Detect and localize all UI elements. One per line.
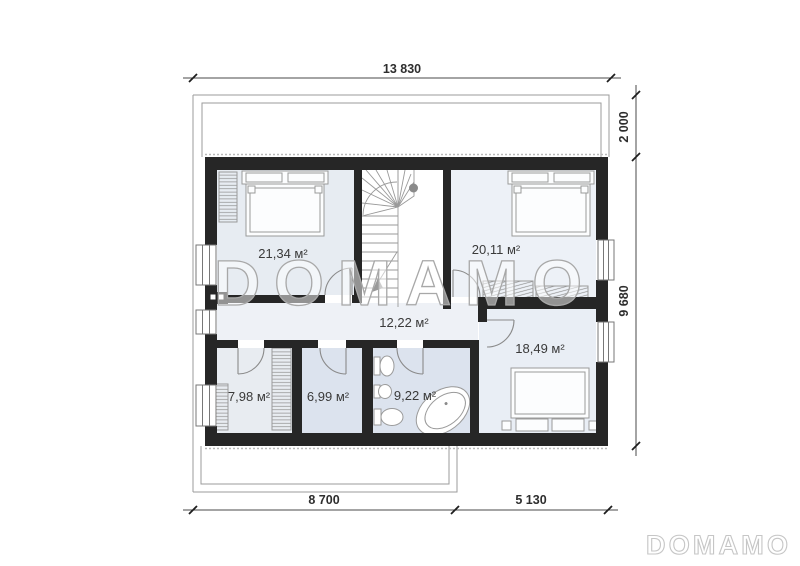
sink <box>374 356 394 376</box>
dim-bottom-left: 8 700 <box>308 493 339 507</box>
floor-plan-drawing: 21,34 м² 20,11 м² 12,22 м² 18,49 м² 7,98… <box>0 0 800 566</box>
shelving-wardrobe-room-right <box>272 346 291 430</box>
window-west-wardrobe-room <box>196 385 216 426</box>
wall-wardrobe-utility <box>292 340 302 433</box>
dim-bottom-right: 5 130 <box>515 493 546 507</box>
bed-top-left <box>242 171 328 236</box>
wall-bathroom-bedroom3 <box>470 340 479 433</box>
room-label-wardrobe-room: 7,98 м² <box>228 389 271 404</box>
window-west-hallway <box>196 310 216 334</box>
wardrobe-bedroom-top-left <box>219 172 237 222</box>
stair-newel-post <box>409 184 418 193</box>
room-label-bathroom: 9,22 м² <box>394 388 437 403</box>
wall-exterior-north <box>205 157 608 170</box>
wall-exterior-east <box>596 157 608 446</box>
bidet <box>374 385 392 399</box>
window-west-bedroom1 <box>196 245 216 285</box>
window-east-bedroom3 <box>598 322 614 362</box>
dim-body-depth: 9 680 <box>617 285 631 316</box>
floor-plan-page: 21,34 м² 20,11 м² 12,22 м² 18,49 м² 7,98… <box>0 0 800 566</box>
room-label-bedroom-bottom-right: 18,49 м² <box>515 341 565 356</box>
dim-roof-overhang: 2 000 <box>617 111 631 142</box>
bed-top-right <box>508 171 594 236</box>
window-east-bedroom2 <box>598 240 614 280</box>
wall-utility-bathroom <box>362 340 373 433</box>
room-label-utility-room: 6,99 м² <box>307 389 350 404</box>
brand-logo: DOMAMO <box>646 530 788 560</box>
wall-hallway-south <box>205 340 479 348</box>
wall-exterior-south <box>205 433 608 446</box>
dim-overall-width: 13 830 <box>383 62 421 76</box>
toilet <box>374 409 403 426</box>
